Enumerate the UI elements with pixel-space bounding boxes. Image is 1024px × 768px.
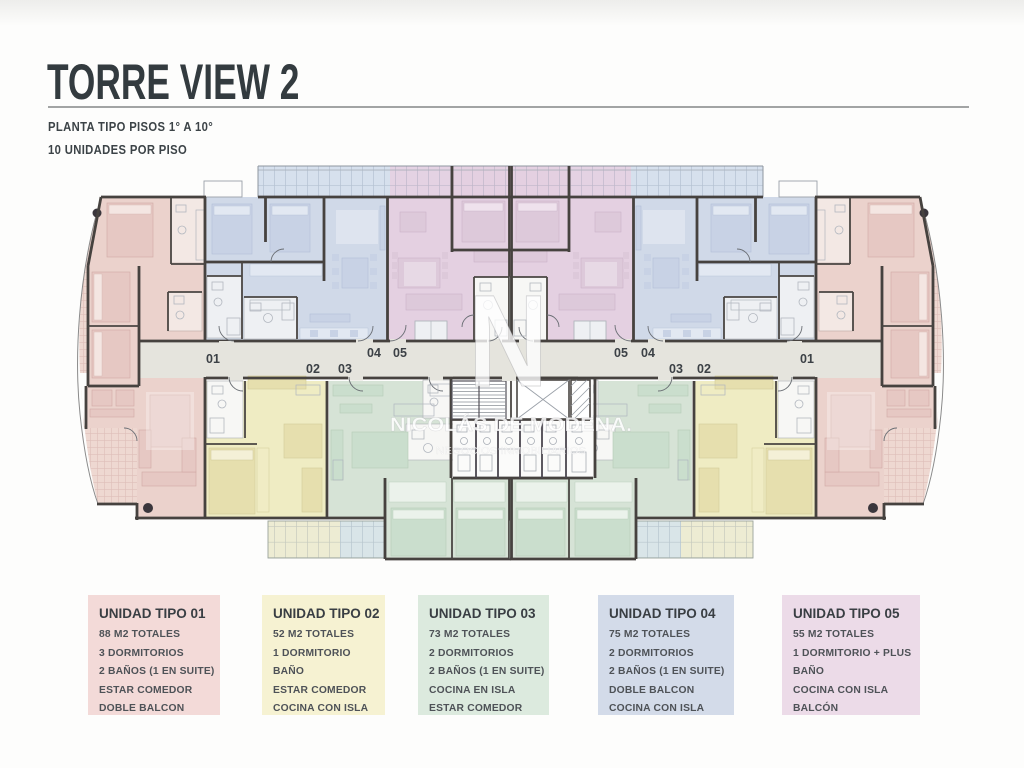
svg-text:NICOLÁS DE MODENA.: NICOLÁS DE MODENA. xyxy=(390,413,632,436)
svg-text:01: 01 xyxy=(800,352,814,366)
svg-text:02: 02 xyxy=(306,362,320,376)
svg-text:N: N xyxy=(468,267,548,414)
svg-text:04: 04 xyxy=(367,346,381,360)
svg-text:05: 05 xyxy=(614,346,628,360)
svg-text:03: 03 xyxy=(338,362,352,376)
svg-text:03: 03 xyxy=(669,362,683,376)
svg-text:04: 04 xyxy=(641,346,655,360)
svg-text:01: 01 xyxy=(206,352,220,366)
svg-text:02: 02 xyxy=(697,362,711,376)
svg-text:05: 05 xyxy=(393,346,407,360)
svg-text:NEGOCIOS INMOBILIARIOS: NEGOCIOS INMOBILIARIOS xyxy=(436,446,586,457)
